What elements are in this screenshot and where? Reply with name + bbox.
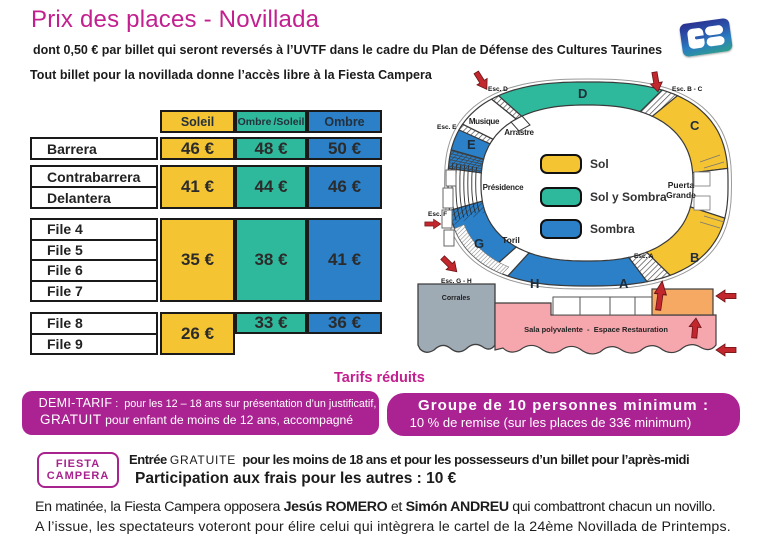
svg-text:Esc. G - H: Esc. G - H: [441, 278, 472, 285]
svg-text:Grande: Grande: [666, 190, 696, 200]
svg-text:Toril: Toril: [502, 235, 520, 245]
svg-text:Esc. F: Esc. F: [428, 211, 447, 218]
svg-text:Musique: Musique: [469, 117, 500, 126]
svg-text:Sol y Sombra: Sol y Sombra: [590, 190, 667, 204]
svg-text:C: C: [690, 118, 700, 133]
svg-text:Présidence: Présidence: [483, 183, 524, 192]
svg-text:B: B: [690, 250, 699, 265]
svg-text:Sala polyvalente - Espace Re: Sala polyvalente - Espace Restauration: [524, 325, 668, 334]
svg-text:G: G: [474, 236, 484, 251]
svg-text:Arrastre: Arrastre: [504, 128, 534, 137]
svg-text:Esc. A: Esc. A: [634, 253, 654, 260]
svg-text:E: E: [467, 137, 476, 152]
svg-text:Corrales: Corrales: [442, 295, 471, 302]
svg-text:Esc. B - C: Esc. B - C: [672, 86, 703, 93]
svg-text:Esc. E: Esc. E: [437, 124, 457, 131]
svg-text:D: D: [578, 86, 587, 101]
svg-text:Sombra: Sombra: [590, 222, 635, 236]
svg-text:Puerta: Puerta: [668, 180, 695, 190]
svg-text:Esc. D: Esc. D: [488, 86, 508, 93]
svg-text:Sol: Sol: [590, 157, 609, 171]
svg-text:H: H: [530, 276, 539, 291]
svg-text:A: A: [619, 276, 629, 291]
